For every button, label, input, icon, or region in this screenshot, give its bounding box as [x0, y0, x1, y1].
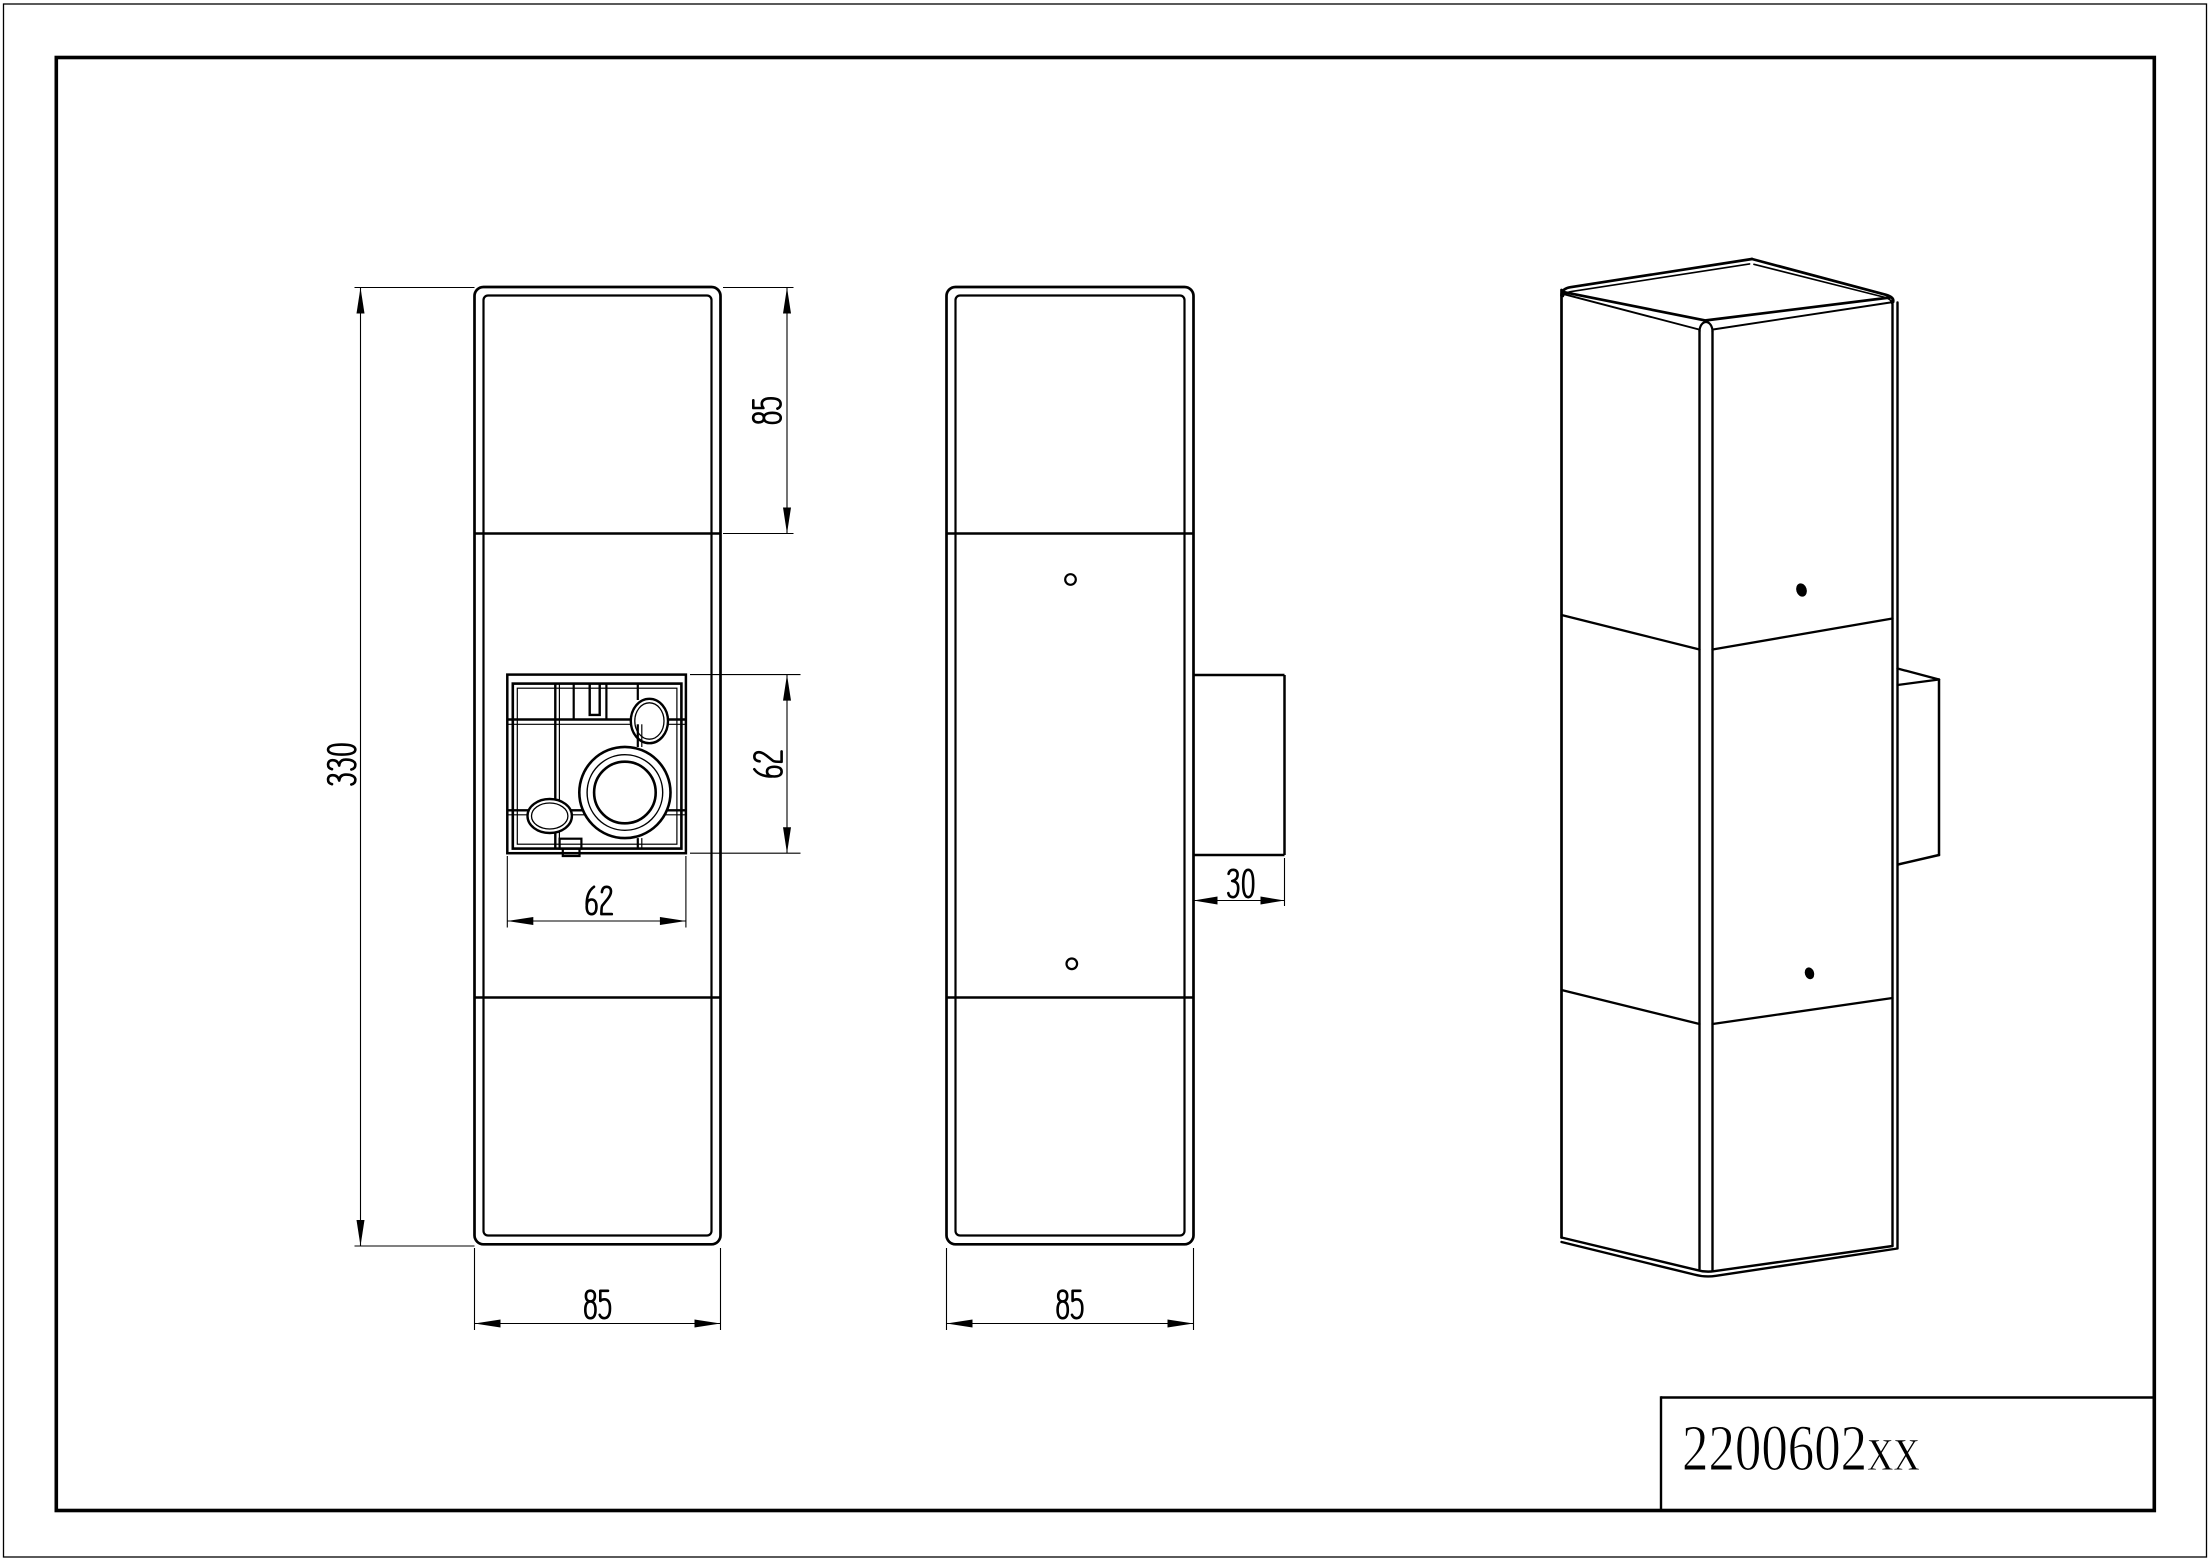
svg-text:2200602xx: 2200602xx [1682, 1412, 1920, 1485]
